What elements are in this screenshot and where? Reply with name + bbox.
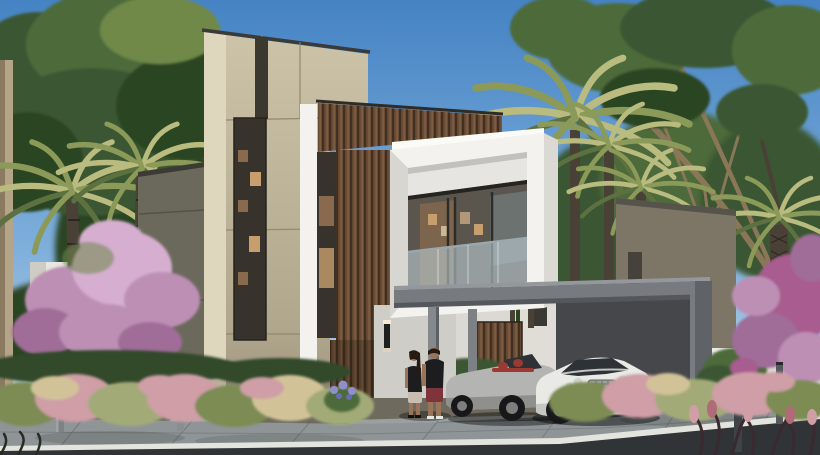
- tower-window: [234, 118, 266, 340]
- people-shadow: [399, 411, 451, 421]
- villa-render-image: [0, 0, 820, 455]
- stair-glass-slot: [317, 152, 336, 338]
- tower-slot-gap: [255, 37, 268, 119]
- wall-sconce-light: [384, 324, 390, 348]
